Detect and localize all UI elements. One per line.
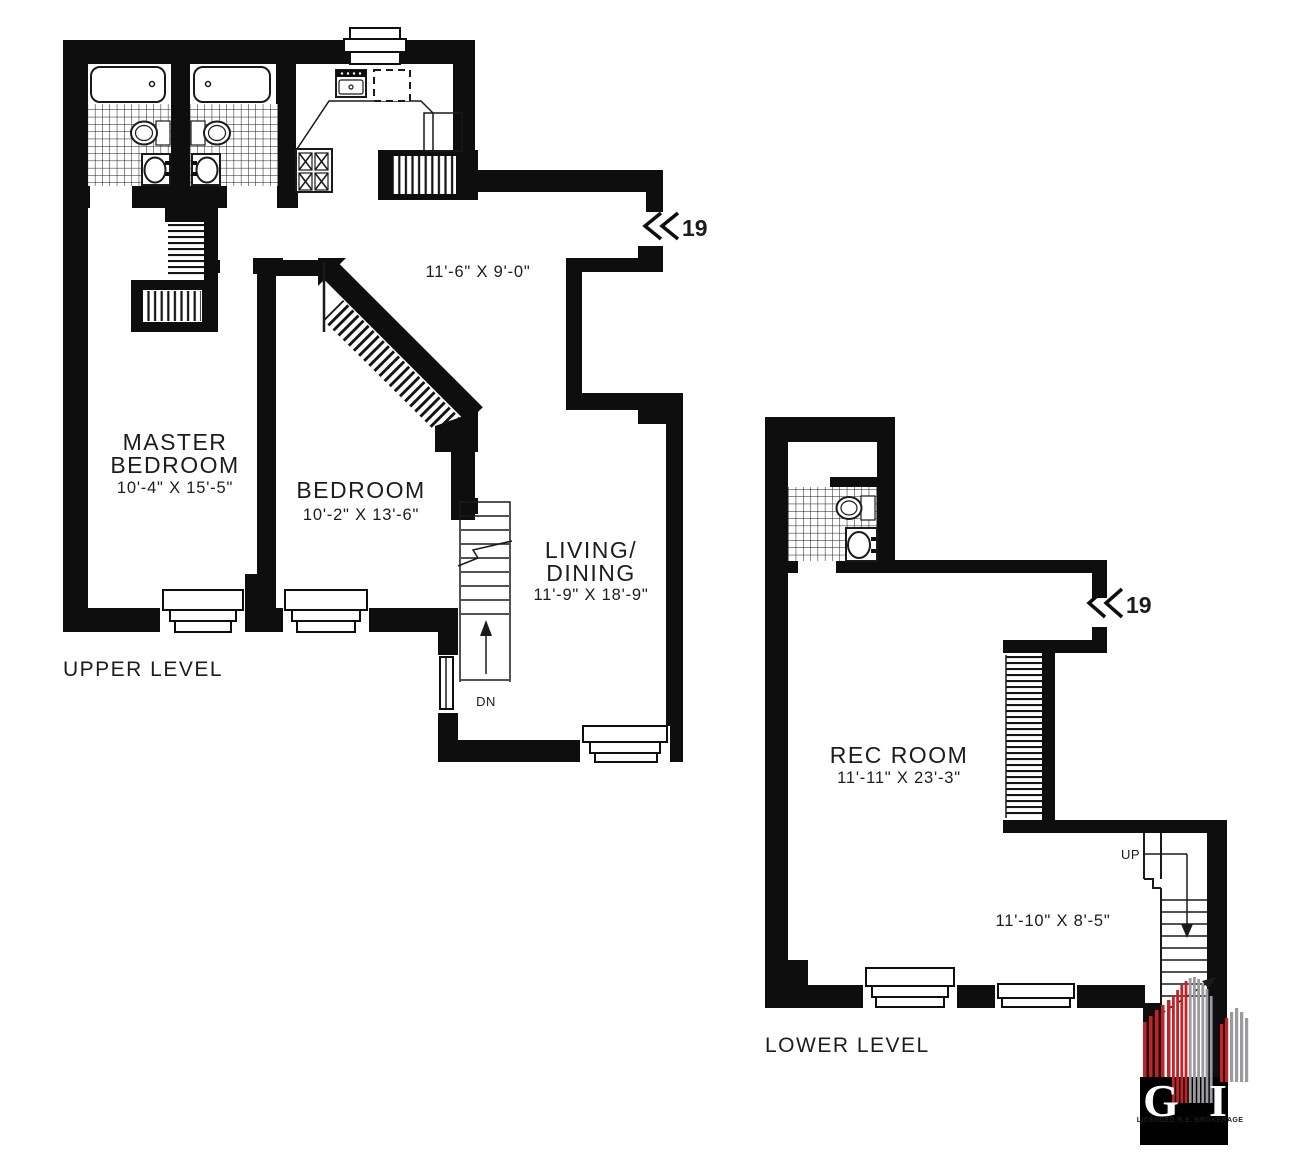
wall-stub	[788, 560, 798, 573]
room-dim-living: 11'-9" X 18'-9"	[533, 586, 648, 604]
wall-left	[765, 417, 788, 1008]
stair-down-label: DN	[476, 694, 496, 709]
stove-icon	[296, 149, 332, 192]
bathtub-icon	[194, 67, 270, 102]
bathroom-2	[190, 67, 278, 186]
chevron-left-icon	[645, 213, 661, 239]
stair-up-label: UP	[1121, 847, 1140, 862]
room-label-rec-room: REC ROOM	[830, 742, 969, 768]
unit-number: 19	[1126, 592, 1152, 618]
wall-closet-right	[1042, 653, 1055, 823]
wall-stub	[830, 477, 877, 487]
kitchen-sink-icon	[336, 70, 366, 97]
sink-icon	[191, 154, 220, 185]
stair-outline	[460, 502, 510, 682]
wall-block	[245, 574, 276, 610]
closet-rod	[168, 223, 204, 277]
room-dim-bedroom: 10'-2" X 13'-6"	[303, 506, 419, 524]
window-icon	[283, 590, 369, 632]
floor-plan-drawing: DN 19 MASTER BEDROOM 10'-4" X 15'-5" BED…	[0, 0, 1292, 1168]
wall-entry	[566, 393, 641, 410]
room-label-master-line2: BEDROOM	[110, 452, 239, 478]
kitchen-window-icon	[344, 28, 406, 64]
chevron-left-icon	[1106, 589, 1122, 617]
door-opening	[227, 186, 277, 208]
logo-caption: LICENSED R.E. BROKERAGE	[1137, 1117, 1243, 1124]
closet-rod	[393, 156, 456, 194]
counter-outline	[297, 101, 433, 151]
toilet-icon	[131, 121, 170, 145]
lower-level-plan: UP 19 REC ROOM 11'-11" X 23'-3" 11'-10" …	[765, 417, 1227, 1090]
floorplan-page: DN 19 MASTER BEDROOM 10'-4" X 15'-5" BED…	[0, 0, 1292, 1168]
toilet-icon	[837, 496, 876, 520]
room-label-bedroom: BEDROOM	[296, 477, 425, 503]
wall-stub	[204, 260, 220, 273]
wall	[63, 40, 473, 64]
wall-bedroom-divider	[257, 260, 276, 580]
room-dim-master: 10'-4" X 15'-5"	[117, 479, 233, 497]
wall	[165, 192, 207, 222]
wall	[276, 62, 296, 208]
wall-block	[638, 393, 683, 424]
wall-entry-stub	[638, 246, 663, 272]
upper-level-title: UPPER LEVEL	[63, 658, 223, 681]
closet-rod	[1006, 655, 1042, 818]
wall-closet	[202, 280, 218, 332]
room-dim-kitchen: 11'-6" X 9'-0"	[425, 263, 530, 281]
room-dim-utility: 11'-10" X 8'-5"	[995, 912, 1110, 930]
wall	[63, 608, 458, 632]
window-icon	[995, 984, 1077, 1008]
wall-entry	[566, 258, 582, 403]
bathroom-lower	[788, 477, 877, 561]
toilet-icon	[191, 121, 230, 145]
bathroom-1	[88, 67, 171, 186]
room-dim-rec-room: 11'-11" X 23'-3"	[837, 769, 961, 787]
diagonal-closet	[318, 258, 478, 452]
window-icon	[580, 726, 670, 762]
wall-entry	[566, 258, 641, 272]
stair-treads	[461, 516, 509, 680]
wall-stub	[453, 498, 478, 514]
entry-marker-lower: 19	[1089, 589, 1152, 618]
wall	[63, 40, 88, 632]
wall-bath-right	[877, 442, 895, 573]
closet-rod	[144, 291, 201, 321]
wall-closet	[131, 322, 213, 332]
wall-closet-top	[1003, 640, 1107, 653]
entry-marker-upper: 19	[645, 213, 708, 241]
wall-right	[666, 420, 683, 742]
wall-stub	[646, 192, 663, 212]
stair-treads	[1161, 900, 1207, 996]
wall-closet	[131, 280, 213, 290]
lower-level-title: LOWER LEVEL	[765, 1034, 930, 1057]
bathtub-icon	[91, 67, 165, 102]
sink-icon	[846, 528, 877, 561]
door-opening	[90, 186, 132, 208]
arrow-head	[480, 620, 492, 636]
wall-stair-top	[1003, 820, 1219, 833]
sink-icon	[142, 154, 171, 185]
wall-corridor-top	[453, 170, 663, 192]
room-label-living-line2: DINING	[546, 560, 636, 586]
wall-entry-stub	[1092, 627, 1107, 641]
window-icon	[160, 590, 245, 632]
dishwasher-icon	[374, 70, 410, 101]
chevron-left-icon	[662, 213, 678, 239]
wall-top	[765, 417, 895, 442]
upper-level-plan: DN 19 MASTER BEDROOM 10'-4" X 15'-5" BED…	[63, 28, 708, 762]
wall-bath-divider	[171, 62, 190, 192]
stair-landing-step	[1144, 879, 1161, 888]
unit-number: 19	[682, 215, 708, 241]
staircase-down: DN	[458, 502, 512, 709]
window-icon	[438, 655, 458, 713]
window-icon	[863, 968, 957, 1008]
